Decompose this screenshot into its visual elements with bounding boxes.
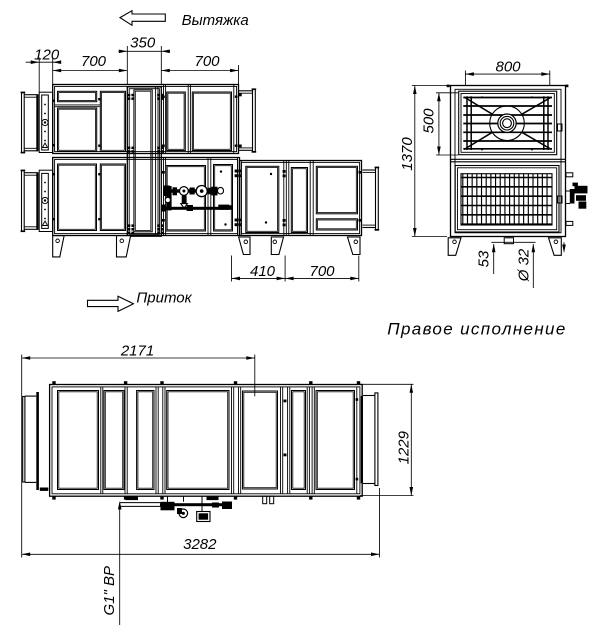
svg-text:120: 120 bbox=[34, 46, 60, 63]
svg-text:G1" ВР: G1" ВР bbox=[101, 566, 118, 616]
svg-text:1229: 1229 bbox=[396, 430, 413, 464]
svg-text:Вытяжка: Вытяжка bbox=[182, 12, 249, 29]
svg-text:700: 700 bbox=[194, 53, 220, 70]
svg-text:410: 410 bbox=[250, 263, 276, 280]
svg-text:700: 700 bbox=[309, 263, 335, 280]
svg-text:3282: 3282 bbox=[183, 536, 217, 553]
svg-text:53: 53 bbox=[476, 250, 493, 267]
svg-text:1370: 1370 bbox=[399, 137, 416, 171]
svg-text:Ø 32: Ø 32 bbox=[516, 248, 533, 282]
svg-text:500: 500 bbox=[421, 108, 438, 134]
svg-text:Приток: Приток bbox=[136, 290, 192, 307]
svg-text:700: 700 bbox=[81, 53, 107, 70]
svg-text:800: 800 bbox=[495, 58, 521, 75]
svg-text:350: 350 bbox=[130, 34, 156, 51]
svg-text:Правое исполнение: Правое исполнение bbox=[387, 319, 566, 338]
svg-text:2171: 2171 bbox=[120, 343, 154, 360]
